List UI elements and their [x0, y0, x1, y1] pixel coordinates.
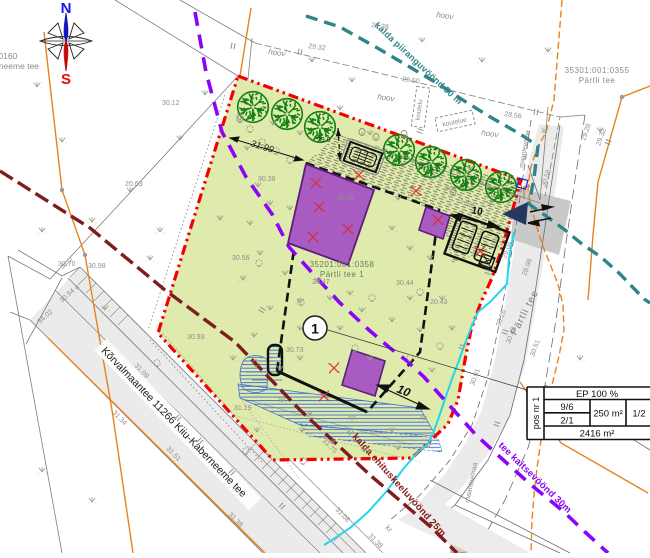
svg-text:20.43: 20.43	[430, 299, 448, 306]
svg-text:30.56: 30.56	[232, 255, 250, 262]
svg-text:9/6: 9/6	[560, 402, 573, 413]
svg-text:30.93: 30.93	[187, 334, 205, 341]
svg-text:30.44: 30.44	[396, 280, 414, 287]
svg-text:35301:001:0355: 35301:001:0355	[565, 66, 630, 75]
svg-text:EP 100 %: EP 100 %	[576, 389, 619, 400]
svg-text:2/1: 2/1	[560, 416, 573, 427]
svg-text:20.63: 20.63	[125, 181, 143, 188]
svg-text:N: N	[61, 0, 72, 17]
svg-text:250 m²: 250 m²	[593, 409, 623, 420]
svg-text:29.0: 29.0	[317, 137, 331, 144]
svg-text:30.12: 30.12	[162, 100, 180, 107]
svg-text:30.47: 30.47	[312, 279, 330, 286]
svg-text:35201:001:0358: 35201:001:0358	[310, 260, 375, 269]
svg-text:Pärtli tee 1: Pärtli tee 1	[320, 270, 364, 279]
svg-text:30.73: 30.73	[286, 347, 304, 354]
svg-text:30.38: 30.38	[258, 176, 276, 183]
svg-text::0160: :0160	[0, 51, 18, 61]
svg-text:1/2: 1/2	[632, 409, 645, 420]
svg-text:31.19: 31.19	[234, 405, 252, 412]
svg-text:pos nr 1: pos nr 1	[531, 397, 541, 430]
svg-text:30.86: 30.86	[337, 195, 355, 202]
svg-text:Pärtli tee: Pärtli tee	[579, 76, 616, 85]
svg-text:30.98: 30.98	[88, 263, 106, 270]
svg-text:2416 m²: 2416 m²	[580, 429, 615, 440]
svg-text:1: 1	[311, 321, 319, 337]
svg-text:S: S	[61, 71, 71, 88]
svg-text:kr: kr	[542, 126, 549, 135]
svg-text:rneeme tee: rneeme tee	[0, 61, 39, 71]
svg-text:30.70: 30.70	[58, 261, 76, 268]
